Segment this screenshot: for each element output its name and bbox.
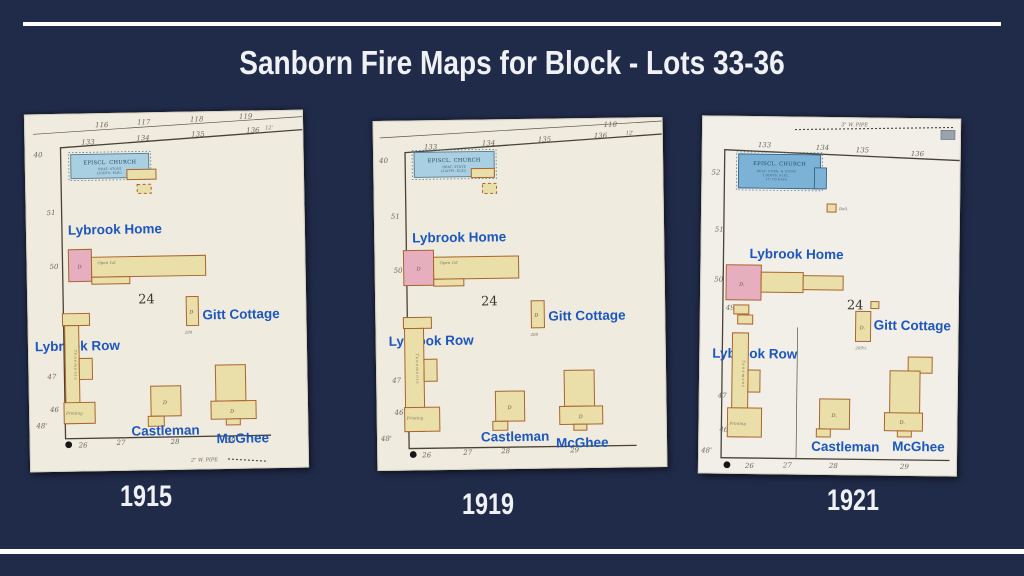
street-number: 118: [190, 115, 204, 123]
lybrook-row-wing: [748, 370, 760, 392]
tenements-text: Tenements: [73, 350, 79, 381]
upper-street-line: [33, 117, 302, 135]
sanborn-map-1921: 3" W. PIPE 133 134 135 136 52 51 50 49 4…: [698, 115, 961, 476]
mcghee-porch: [574, 424, 587, 430]
dwelling-marker: D.: [898, 420, 905, 426]
block-left-line: [721, 150, 725, 458]
lot-number: 26: [744, 462, 755, 470]
dwelling-marker: D.: [859, 325, 866, 331]
church-note: LIGHTS: ELEC.: [97, 171, 123, 175]
street-number: 119: [239, 112, 253, 120]
lybrook-home-wing: [761, 272, 803, 293]
block-top-line: [60, 130, 302, 148]
left-number: 46: [49, 406, 60, 414]
dwelling-marker: D: [229, 409, 234, 415]
lybrook-row-wing: [79, 358, 92, 379]
left-number: 50: [714, 276, 724, 284]
lybrook-row-cap: [738, 315, 753, 324]
lot-number: 28: [828, 462, 839, 470]
church-name: EPISCL. CHURCH: [83, 160, 136, 167]
outbuilding: [827, 204, 836, 212]
label-mcghee: McGhee: [216, 430, 269, 446]
street-number: 134: [136, 134, 150, 142]
left-number: 51: [391, 213, 400, 221]
left-number: 46: [394, 409, 405, 417]
dwelling-marker: D: [578, 414, 583, 420]
open-note: Open 1st: [97, 260, 116, 265]
dwelling-marker: D.: [738, 282, 745, 288]
dwelling-marker: D.: [830, 413, 837, 419]
label-castleman: Castleman: [811, 439, 879, 455]
church-annex-building: [814, 168, 826, 189]
year-label-1921: 1921: [827, 484, 879, 518]
water-pipe-note: 2" W. PIPE: [190, 457, 218, 463]
sanborn-map-1919: 118 12' 133 134 135 136 40 51 50 47 46 4…: [373, 117, 668, 471]
lot-number: 27: [462, 449, 473, 457]
church-note: LIGHTS: ELEC.: [441, 169, 467, 173]
lot-number: 29: [899, 463, 910, 471]
lybrook-home-wing-2: [803, 276, 843, 290]
lot-number: 26: [78, 441, 89, 449]
left-number: 51: [47, 209, 56, 217]
tenements-text: Tenement: [741, 360, 746, 388]
lybrook-row-cap: [403, 317, 431, 328]
lybrook-row-wing: [424, 359, 437, 381]
dwelling-marker: D: [416, 266, 421, 272]
mcghee-building: [564, 370, 594, 406]
upper-street-line: [380, 121, 662, 138]
mcghee-porch: [226, 419, 240, 425]
map-1915-drawing: 116 117 118 119 12' 133 134 135 136 40 5…: [25, 111, 308, 472]
street-number: 133: [81, 138, 95, 146]
dwelling-marker: D: [507, 405, 512, 411]
corner-dimension: 48': [35, 422, 47, 430]
water-pipe-dashes: [228, 458, 268, 462]
left-number: 40: [378, 157, 389, 165]
left-number: 47: [717, 392, 728, 400]
street-number: 135: [191, 130, 205, 138]
gitt-cottage-shed: [871, 302, 879, 309]
mcghee-porch: [897, 431, 911, 437]
street-number: 135: [538, 136, 552, 144]
slide-title: Sanborn Fire Maps for Block - Lots 33-36: [77, 44, 947, 82]
dwelling-marker: D: [533, 313, 538, 319]
label-mcghee: McGhee: [892, 439, 945, 455]
street-number: 136: [246, 126, 260, 134]
church-name: EPISCL. CHURCH: [428, 158, 481, 165]
church-note: 15' TO EAVE: [766, 177, 788, 181]
label-lybrook-row: Lybrook Row: [389, 333, 475, 349]
bottom-divider-line: [0, 549, 1024, 554]
label-lybrook-home: Lybrook Home: [749, 246, 844, 262]
church-annex-building: [471, 168, 494, 177]
house-number: 288: [184, 330, 193, 335]
block-bottom-line: [721, 458, 949, 461]
left-number: 52: [711, 169, 721, 177]
street-number: 135: [856, 146, 870, 154]
lot-number: 28: [500, 447, 511, 455]
label-lybrook-home: Lybrook Home: [68, 221, 163, 238]
church-name: EPISCL. CHURCH: [753, 161, 806, 168]
lot-number: 26: [421, 451, 432, 459]
water-pipe-dashes: [795, 126, 953, 132]
house-number: 289½: [854, 345, 867, 350]
street-number: 133: [758, 141, 772, 149]
label-mcghee: McGhee: [556, 435, 609, 451]
top-divider-line: [23, 22, 1001, 26]
dwelling-marker: D: [188, 310, 193, 316]
label-gitt-cottage: Gitt Cottage: [202, 306, 280, 322]
label-castleman: Castleman: [481, 429, 549, 445]
slide: Sanborn Fire Maps for Block - Lots 33-36…: [0, 0, 1024, 576]
label-castleman: Castleman: [131, 422, 200, 438]
printing-text: Printing: [406, 415, 424, 420]
street-number: 118: [604, 121, 618, 129]
label-lybrook-home: Lybrook Home: [412, 229, 507, 245]
street-number: 117: [137, 118, 151, 126]
street-number: 136: [594, 132, 608, 140]
left-number: 50: [394, 267, 404, 275]
castleman-porch: [816, 429, 830, 437]
lot-number: 28: [170, 438, 181, 446]
corner-dot: [723, 461, 730, 468]
mcghee-building: [215, 365, 246, 402]
corner-dimension: 48': [700, 446, 712, 454]
sanborn-map-1915: 116 117 118 119 12' 133 134 135 136 40 5…: [24, 110, 309, 473]
corner-dot: [410, 451, 417, 458]
left-number: 50: [49, 263, 59, 271]
street-number: 134: [482, 139, 495, 147]
street-number: 116: [95, 121, 109, 129]
legend-box: [941, 130, 955, 139]
lybrook-home-porch: [92, 277, 130, 285]
block-left-line: [60, 148, 65, 439]
left-number: 40: [33, 151, 44, 159]
lybrook-home-wing: [91, 255, 205, 277]
street-number: 136: [911, 150, 925, 158]
left-number: 47: [46, 373, 57, 381]
lot-number: 27: [782, 461, 793, 469]
outbuilding: [137, 184, 151, 193]
lybrook-home-porch: [734, 305, 749, 314]
label-gitt-cottage: Gitt Cottage: [874, 318, 952, 334]
church-annex-building: [127, 169, 156, 180]
corner-dimension: 48': [380, 435, 392, 443]
left-number: 47: [391, 377, 402, 385]
map-1919-drawing: 118 12' 133 134 135 136 40 51 50 47 46 4…: [374, 118, 667, 470]
lot-number: 27: [116, 439, 127, 447]
block-number: 24: [481, 294, 498, 309]
house-number: 288: [530, 332, 539, 337]
corner-dot: [65, 441, 72, 448]
label-gitt-cottage: Gitt Cottage: [548, 308, 626, 324]
outbuilding: [482, 183, 496, 193]
block-top-line: [405, 134, 662, 153]
tenements-text: Tenements: [415, 353, 420, 384]
street-number: 134: [816, 144, 829, 152]
year-label-1915: 1915: [120, 480, 172, 514]
lybrook-home-porch: [434, 279, 464, 286]
printing-text: Printing: [65, 410, 83, 415]
lybrook-row-cap: [62, 313, 89, 325]
width-tick: 12': [265, 125, 273, 131]
printing-text: Printing: [728, 421, 746, 426]
year-label-1919: 1919: [462, 488, 514, 522]
open-note: Open 1st: [440, 260, 459, 265]
dwelling-marker: D: [162, 400, 167, 406]
dwelling-marker: D: [77, 264, 82, 270]
label-lybrook-row: Lybrook Row: [712, 346, 798, 362]
left-number: 51: [715, 226, 724, 234]
water-pipe-note: 3" W. PIPE: [841, 122, 868, 128]
block-number: 24: [138, 292, 155, 307]
map-1921-drawing: 3" W. PIPE 133 134 135 136 52 51 50 49 4…: [699, 116, 960, 475]
outbuilding-note: Balt.: [838, 206, 849, 211]
